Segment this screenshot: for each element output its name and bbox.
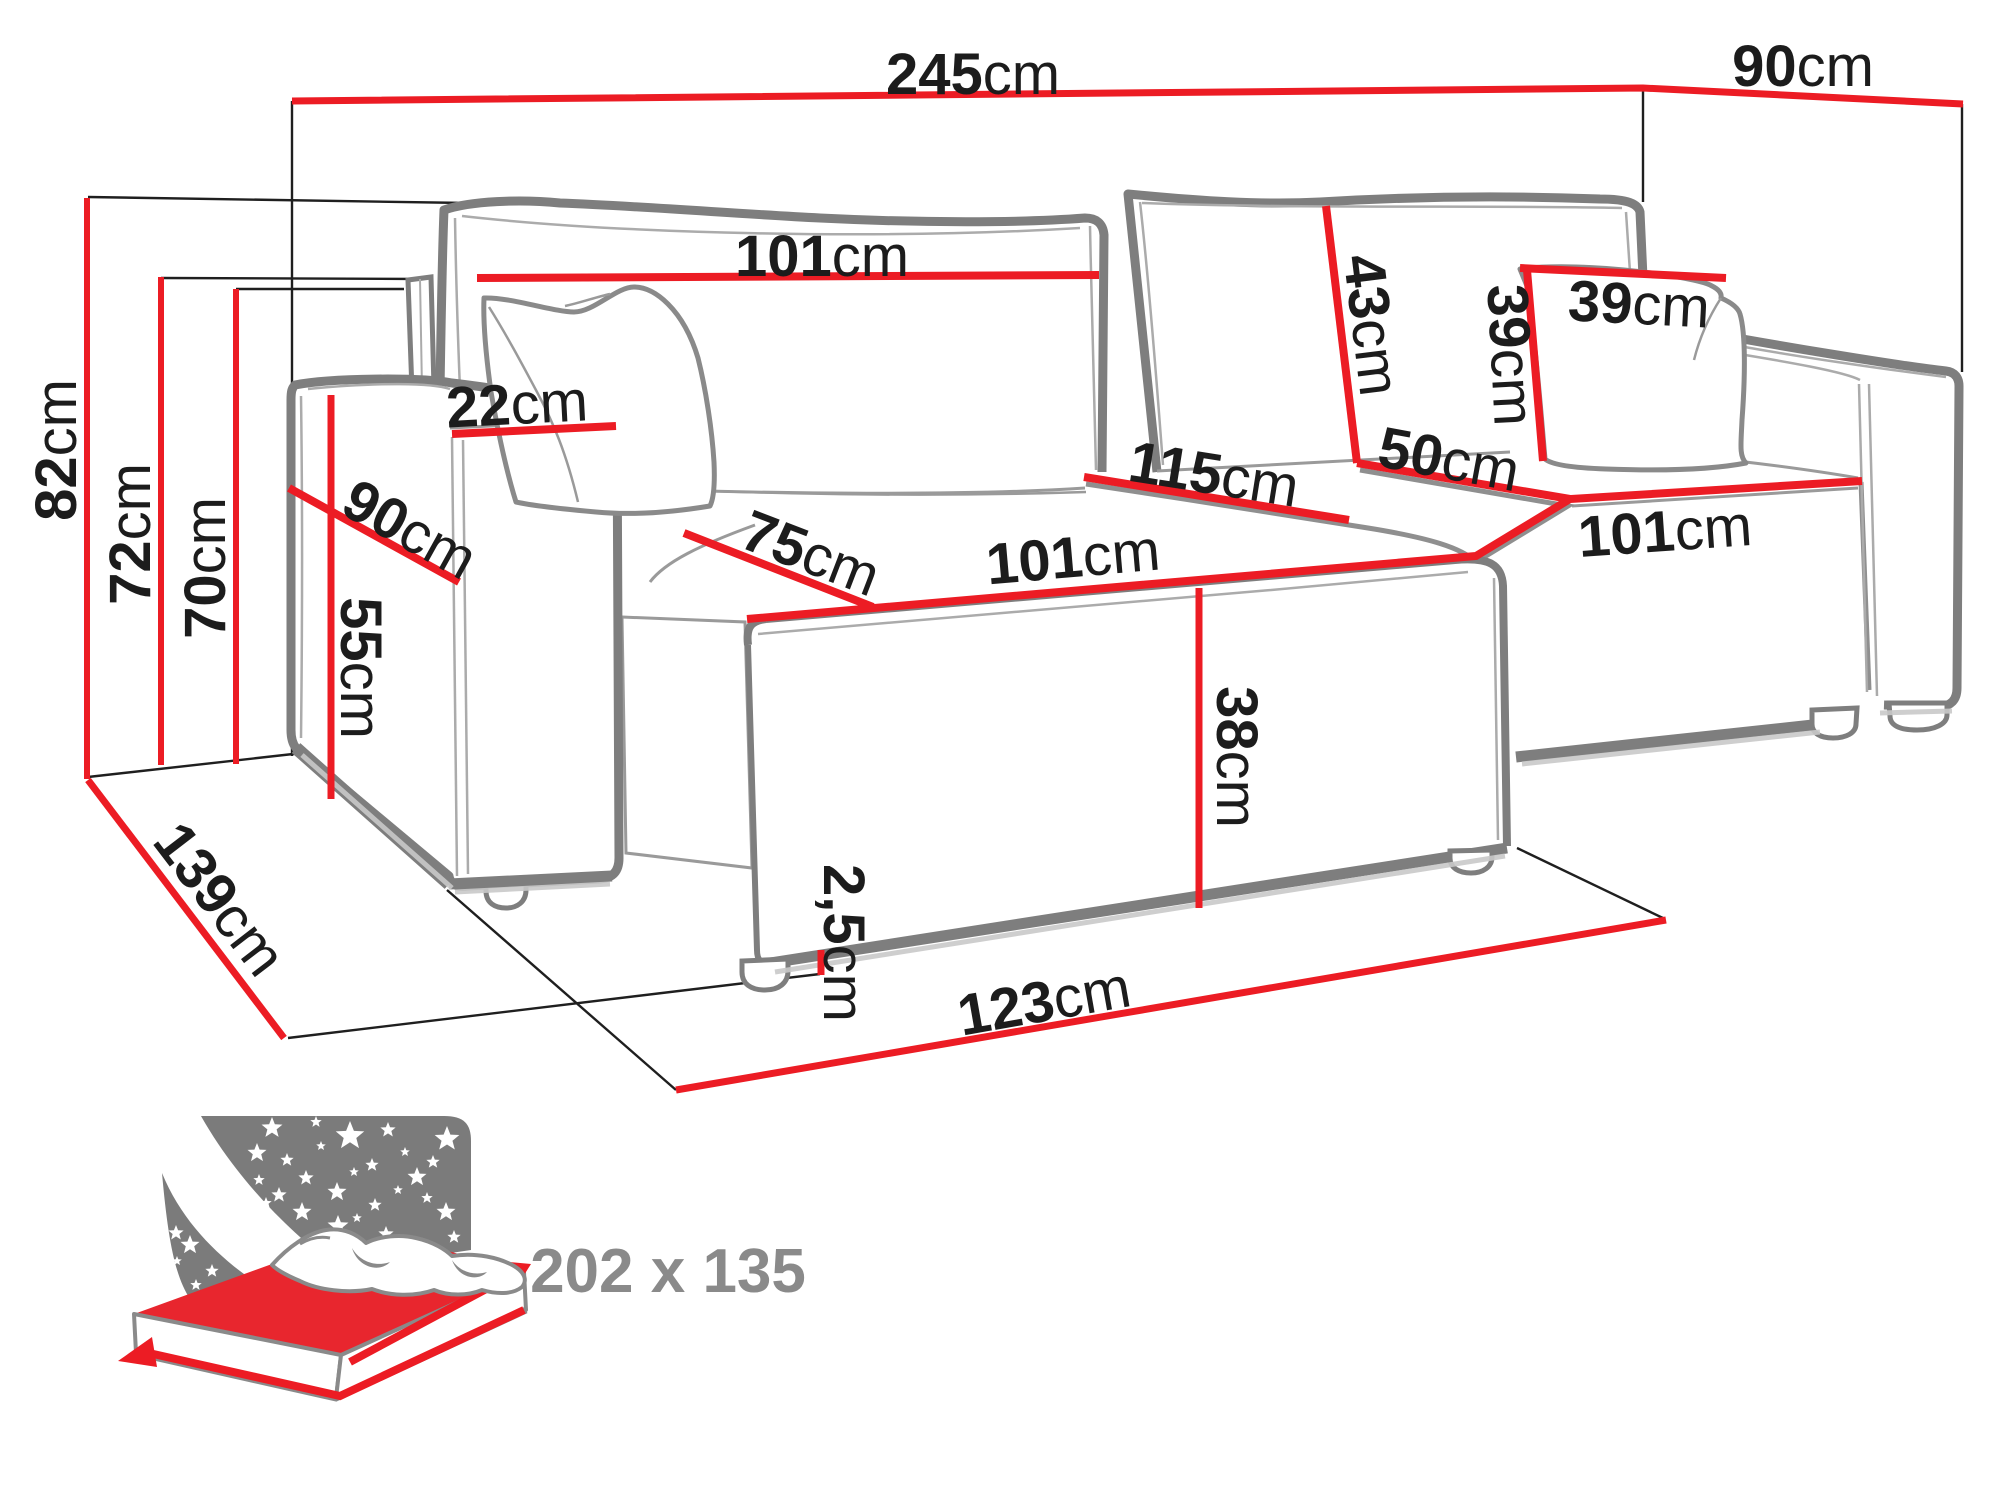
svg-text:90cm: 90cm xyxy=(1732,34,1874,99)
svg-text:72cm: 72cm xyxy=(98,463,163,605)
svg-text:101cm: 101cm xyxy=(1576,493,1754,570)
svg-text:39cm: 39cm xyxy=(1566,268,1711,340)
svg-text:2,5cm: 2,5cm xyxy=(811,864,876,1022)
svg-text:22cm: 22cm xyxy=(445,368,590,440)
svg-text:101cm: 101cm xyxy=(735,224,909,289)
svg-text:245cm: 245cm xyxy=(886,42,1060,107)
svg-text:202 x 135: 202 x 135 xyxy=(530,1237,806,1306)
svg-text:82cm: 82cm xyxy=(24,379,89,521)
svg-text:70cm: 70cm xyxy=(173,497,238,639)
svg-text:38cm: 38cm xyxy=(1204,686,1269,828)
svg-text:55cm: 55cm xyxy=(328,597,393,739)
svg-text:39cm: 39cm xyxy=(1474,283,1546,428)
